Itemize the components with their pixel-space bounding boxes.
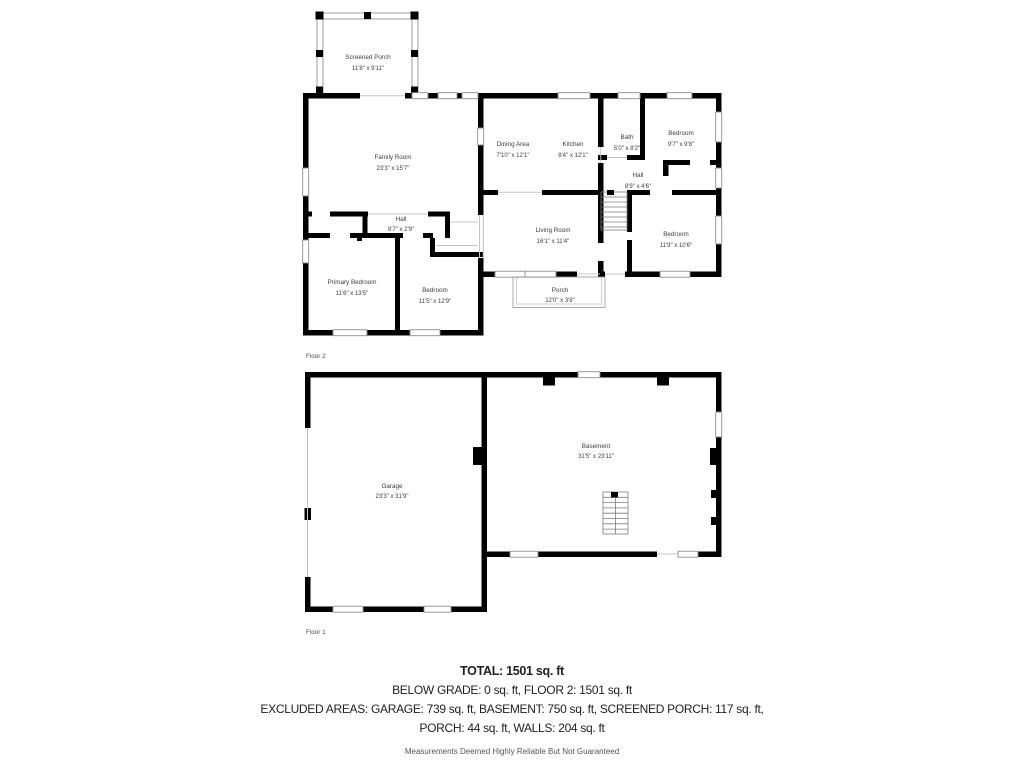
floor1-caption: Floor 1 bbox=[306, 629, 326, 636]
room-label-living-room: Living Room bbox=[536, 227, 571, 234]
staircase-basement bbox=[603, 492, 628, 534]
floor2-room-labels: Screened Porch 11'8" x 9'11" Family Room… bbox=[328, 54, 695, 305]
room-dims-basement: 31'5" x 23'11" bbox=[578, 454, 614, 460]
summary-total: TOTAL: 1501 sq. ft bbox=[0, 662, 1024, 681]
screened-porch-walls bbox=[316, 12, 419, 94]
room-dims-bedroom-bottom-left: 11'5" x 12'9" bbox=[419, 299, 451, 305]
room-label-bedroom-top-right: Bedroom bbox=[668, 130, 694, 137]
room-label-hall-right: Hall bbox=[633, 172, 644, 179]
room-dims-bedroom-bottom-right: 11'9" x 10'6" bbox=[660, 243, 692, 249]
summary-porch-walls-line: PORCH: 44 sq. ft, WALLS: 204 sq. ft bbox=[0, 719, 1024, 738]
room-dims-family-room: 23'3" x 15'7" bbox=[377, 166, 410, 172]
floor2-plan: Screened Porch 11'8" x 9'11" Family Room… bbox=[303, 12, 722, 361]
room-label-bath: Bath bbox=[621, 134, 634, 141]
summary-block: TOTAL: 1501 sq. ft BELOW GRADE: 0 sq. ft… bbox=[0, 662, 1024, 756]
room-dims-garage: 23'3" x 31'9" bbox=[376, 494, 409, 500]
floor2-caption: Floor 2 bbox=[306, 353, 326, 360]
floorplan-canvas: Screened Porch 11'8" x 9'11" Family Room… bbox=[0, 0, 1024, 768]
room-label-screened-porch: Screened Porch bbox=[345, 54, 391, 61]
room-label-primary-bedroom: Primary Bedroom bbox=[328, 279, 377, 286]
staircase-floor2 bbox=[601, 190, 627, 230]
room-dims-porch: 12'0" x 3'8" bbox=[545, 298, 575, 304]
room-dims-bath: 5'0" x 8'2" bbox=[614, 146, 640, 152]
room-dims-hall-left: 8'7" x 2'9" bbox=[388, 227, 414, 233]
floor1-plan: Garage 23'3" x 31'9" Basement 31'5" x 23… bbox=[305, 372, 722, 636]
summary-grade-line: BELOW GRADE: 0 sq. ft, FLOOR 2: 1501 sq.… bbox=[0, 681, 1024, 700]
room-label-family-room: Family Room bbox=[374, 154, 411, 161]
room-label-basement: Basement bbox=[582, 443, 611, 450]
room-label-garage: Garage bbox=[381, 483, 403, 490]
floor1-windows bbox=[333, 372, 722, 613]
room-label-hall-left: Hall bbox=[396, 216, 407, 223]
summary-disclaimer: Measurements Deemed Highly Reliable But … bbox=[0, 747, 1024, 756]
room-label-dining-area: Dining Area bbox=[497, 141, 530, 148]
room-dims-screened-porch: 11'8" x 9'11" bbox=[352, 66, 384, 72]
room-dims-bedroom-top-right: 9'7" x 9'8" bbox=[668, 142, 694, 148]
room-label-bedroom-bottom-left: Bedroom bbox=[422, 287, 448, 294]
room-label-kitchen: Kitchen bbox=[562, 141, 584, 148]
room-dims-hall-right: 8'9" x 4'6" bbox=[625, 184, 651, 190]
room-dims-primary-bedroom: 11'6" x 13'5" bbox=[336, 291, 368, 297]
room-dims-kitchen: 8'4" x 12'1" bbox=[558, 153, 588, 159]
room-dims-living-room: 16'1" x 11'4" bbox=[537, 239, 569, 245]
room-label-porch: Porch bbox=[552, 287, 569, 294]
floorplan-page: Screened Porch 11'8" x 9'11" Family Room… bbox=[0, 0, 1024, 768]
floor2-walls bbox=[303, 93, 722, 336]
floor1-room-labels: Garage 23'3" x 31'9" Basement 31'5" x 23… bbox=[376, 443, 614, 500]
room-label-bedroom-bottom-right: Bedroom bbox=[663, 231, 689, 238]
floor2-openings bbox=[360, 96, 627, 274]
floor1-walls bbox=[305, 372, 722, 612]
summary-excluded-line: EXCLUDED AREAS: GARAGE: 739 sq. ft, BASE… bbox=[0, 700, 1024, 719]
room-dims-dining-area: 7'10" x 12'1" bbox=[497, 153, 530, 159]
